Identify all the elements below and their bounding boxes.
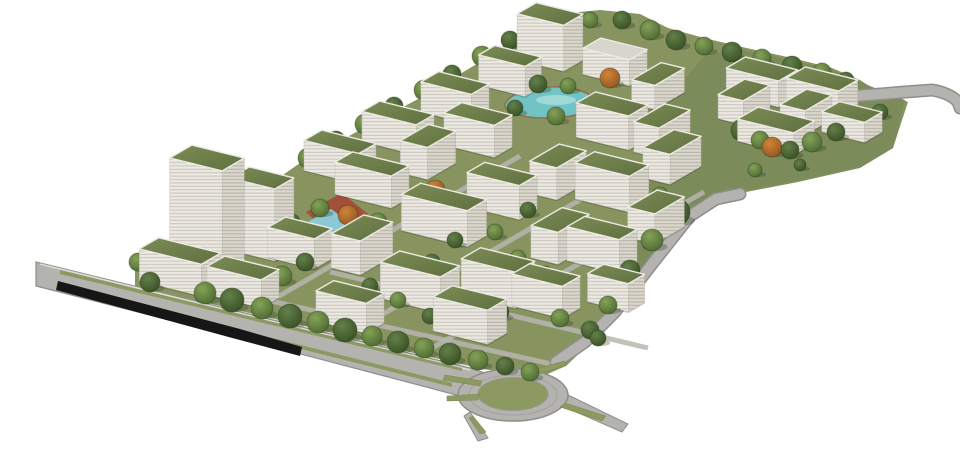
tree-canopy — [390, 292, 406, 308]
tree-canopy — [362, 326, 382, 346]
pond-highlight — [536, 95, 576, 105]
tree-canopy — [666, 30, 686, 50]
tree-canopy — [547, 107, 565, 125]
roundabout-island — [478, 378, 548, 411]
tree-canopy — [582, 12, 598, 28]
tree-canopy — [695, 37, 713, 55]
tree-canopy — [827, 123, 845, 141]
tree-canopy — [447, 232, 463, 248]
tree-canopy — [794, 159, 806, 171]
tree-canopy — [311, 199, 329, 217]
tree-canopy — [496, 357, 514, 375]
tree-canopy — [802, 132, 822, 152]
tree-canopy — [414, 338, 434, 358]
tree-canopy — [521, 363, 539, 381]
tree-canopy — [722, 42, 742, 62]
tree-canopy — [220, 288, 244, 312]
tree-canopy — [520, 202, 536, 218]
tree-canopy — [560, 78, 576, 94]
tree-canopy — [251, 297, 273, 319]
tree-canopy — [640, 20, 660, 40]
splitter-island — [447, 394, 480, 401]
tree-canopy — [748, 163, 762, 177]
tree-canopy — [487, 224, 503, 240]
tree-canopy — [599, 296, 617, 314]
tree-canopy — [333, 318, 357, 342]
tree-canopy — [307, 311, 329, 333]
tree-canopy — [551, 309, 569, 327]
tree-canopy — [613, 11, 631, 29]
tree-canopy — [641, 229, 663, 251]
tree-canopy — [468, 350, 488, 370]
tree-canopy — [140, 272, 160, 292]
tree-canopy — [387, 331, 409, 353]
tree-canopy — [296, 253, 314, 271]
masterplan-rendering — [0, 0, 960, 461]
tree-canopy — [439, 343, 461, 365]
tree-canopy — [194, 282, 216, 304]
tree-canopy — [278, 304, 302, 328]
tree-canopy — [590, 330, 606, 346]
tree-canopy — [762, 137, 782, 157]
masterplan-scene-svg — [0, 0, 960, 461]
tree-canopy — [529, 75, 547, 93]
tree-canopy — [600, 68, 620, 88]
tree-canopy — [507, 100, 523, 116]
tree-canopy — [781, 141, 799, 159]
tree-canopy — [501, 31, 519, 49]
